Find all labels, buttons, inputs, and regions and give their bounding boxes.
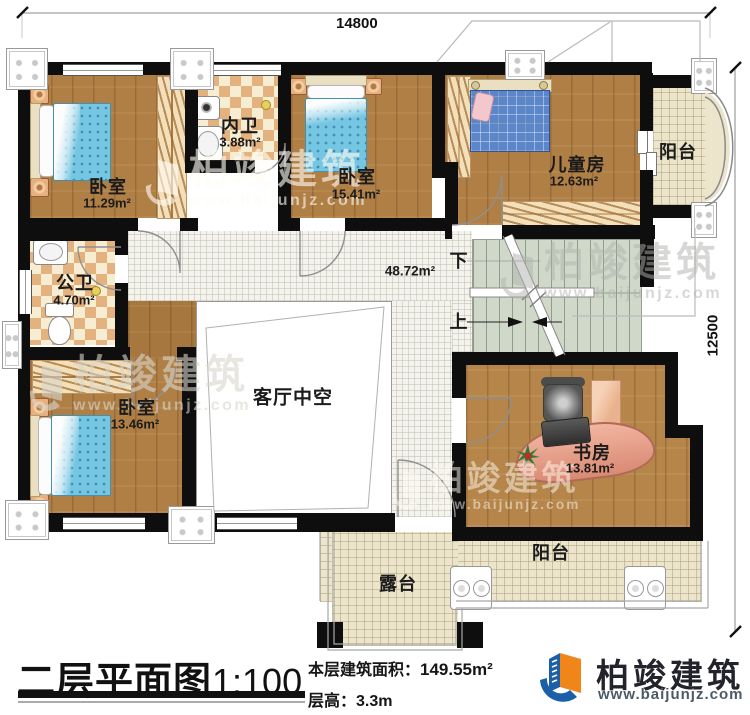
floor-area-label: 本层建筑面积： [308, 662, 420, 679]
wall [115, 228, 128, 255]
mattress [51, 415, 111, 496]
window [63, 64, 143, 76]
wall [445, 162, 458, 225]
railing-post [624, 566, 666, 610]
wall [18, 347, 130, 360]
wall [180, 218, 198, 231]
living-void-area [196, 301, 392, 519]
wardrobe-kids-bottom [502, 201, 642, 227]
public-bath-label: 公卫 [56, 274, 94, 292]
wall [502, 225, 655, 239]
kids-room-area: 12.63m² [550, 175, 598, 188]
terrace-label: 露台 [379, 575, 417, 593]
corner-ornament [5, 500, 49, 540]
kids-room-label: 儿童房 [549, 156, 606, 174]
title-underline-thin [18, 701, 305, 703]
bed-kids [468, 79, 550, 152]
bay-window-floor [705, 92, 730, 202]
floor-area-line: 本层建筑面积：149.55m² [308, 656, 493, 680]
brand-website: www.baijunjz.com [598, 686, 743, 703]
wall [452, 352, 466, 398]
bedroom1-area: 11.29m² [83, 197, 131, 210]
wall [445, 225, 452, 239]
bay-window-glass [705, 88, 733, 206]
nightstand [365, 78, 382, 95]
window [19, 270, 32, 314]
wall [18, 228, 128, 241]
wall [690, 425, 703, 541]
dimension-right: 12500 [705, 314, 722, 358]
balcony-right-label: 阳台 [659, 143, 697, 161]
mattress [305, 98, 367, 172]
bed-bedroom3 [30, 398, 110, 511]
wall [640, 225, 654, 287]
public-bath-area: 4.70m² [53, 294, 94, 307]
wall [640, 73, 653, 131]
inner-bath-label: 内卫 [221, 117, 259, 135]
bedroom3-area: 13.46m² [111, 418, 159, 431]
study-floor-ext [665, 438, 690, 527]
floor-height-line: 层高：3.3m [308, 687, 493, 711]
bed-bedroom2 [290, 75, 380, 171]
living-void-label: 客厅中空 [253, 389, 333, 408]
title-underline [18, 691, 305, 698]
office-chair [543, 384, 583, 422]
terrace-pillar [457, 622, 483, 648]
corner-ornament [170, 48, 214, 90]
wall [432, 62, 445, 178]
corner-ornament [168, 506, 215, 544]
wardrobe [157, 76, 187, 219]
wall [278, 218, 300, 231]
bedroom3-label: 卧室 [118, 399, 156, 417]
corner-ornament [6, 48, 48, 90]
hall-area: 48.72m² [385, 264, 435, 278]
sink [33, 239, 68, 265]
railing-post [450, 566, 492, 610]
dimension-top: 14800 [336, 15, 378, 32]
wardrobe-bedroom3 [32, 360, 132, 394]
stair-down-label: 下 [450, 252, 469, 270]
floor-info: 本层建筑面积：149.55m² 层高：3.3m [308, 656, 493, 711]
inner-bath-area: 3.88m² [219, 136, 260, 149]
wall [452, 443, 466, 532]
roof-outline [437, 21, 700, 62]
pillow [307, 85, 365, 99]
toilet [44, 303, 74, 345]
wall [278, 62, 291, 230]
brand-logo-icon [536, 646, 588, 702]
wall [452, 527, 703, 541]
hall-floor-right [390, 301, 452, 517]
terrace-pillar [317, 622, 343, 648]
corner-ornament [691, 58, 717, 94]
plant [514, 442, 542, 470]
balcony-bottom-label: 阳台 [532, 544, 570, 562]
wall [640, 170, 653, 232]
bookshelf [591, 380, 621, 426]
bedroom2-label: 卧室 [338, 168, 376, 186]
bedroom1-label: 卧室 [89, 178, 127, 196]
window [217, 517, 297, 530]
study-area: 13.81m² [566, 462, 614, 475]
wall [185, 160, 255, 173]
staircase [472, 239, 642, 354]
corner-ornament [691, 202, 717, 238]
ceiling-light [261, 100, 271, 110]
wall [345, 218, 445, 231]
window [63, 517, 145, 530]
nightstand [30, 178, 49, 197]
corner-ornament [505, 50, 545, 80]
floor-plan: 柏竣建筑 www.baijunjz.com 柏竣建筑 www.baijunjz.… [0, 0, 750, 715]
mattress [53, 103, 111, 181]
wall [665, 352, 678, 432]
wall [452, 352, 678, 365]
floor-area-value: 149.55m² [420, 660, 493, 679]
bedroom2-area: 15.41m² [332, 188, 380, 201]
stair-up-label: 上 [450, 313, 469, 331]
sliding-door [637, 130, 648, 154]
corner-ornament [2, 321, 22, 369]
study-label: 书房 [573, 444, 611, 462]
wall [182, 347, 196, 513]
